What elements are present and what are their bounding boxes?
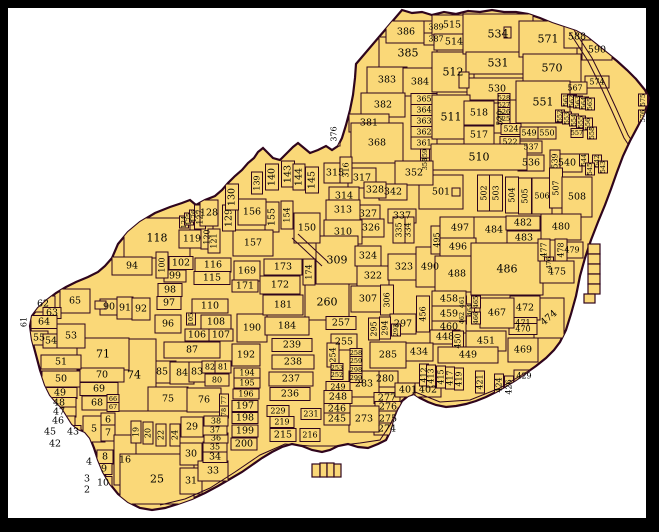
parcel-label: 434 [410, 347, 428, 358]
parcel-label: 551 [533, 96, 554, 109]
parcel-label: 514 [445, 37, 463, 48]
parcel-label: 200 [235, 439, 253, 450]
parcel-label: 150 [298, 223, 316, 234]
parcel-label: 456 [419, 306, 428, 321]
parcel-label: 22 [157, 430, 166, 440]
parcel-label: 29 [186, 422, 198, 433]
parcel-label: 570 [542, 62, 563, 75]
parcel-label: 195 [239, 379, 254, 388]
parcel-label: 249 [330, 383, 345, 392]
parcel-label: 50 [55, 374, 67, 385]
parcel-label: 309 [327, 254, 348, 267]
parcel-label: 24 [171, 430, 180, 440]
parcel-label: 25 [150, 473, 164, 486]
parcel-label: 239 [283, 340, 301, 351]
parcel-label: 10 [97, 478, 109, 489]
parcel-label: 558 [588, 127, 596, 139]
parcel-label: 475 [548, 267, 566, 278]
parcel-label: 518 [470, 108, 488, 119]
island-parcel [588, 254, 600, 264]
parcel-label: 448 [436, 332, 454, 343]
parcel-label: 130 [227, 188, 238, 206]
parcel-label: 192 [237, 350, 255, 361]
parcel-label: 383 [378, 75, 396, 86]
parcel-label: 534 [488, 28, 509, 41]
parcel-label: 139 [253, 175, 262, 190]
parcel-label: 70 [96, 370, 108, 381]
parcel-label: 34 [209, 452, 221, 463]
parcel-label: 327 [359, 209, 377, 220]
parcel-label: 307 [359, 294, 377, 305]
parcel-label: 376 [330, 126, 339, 141]
parcel-label: 590 [588, 45, 606, 56]
parcel-label: 451 [477, 336, 495, 347]
parcel-label: 323 [395, 262, 413, 273]
parcel-label: 108 [207, 317, 225, 328]
parcel-label: 215 [274, 430, 292, 441]
parcel-label: 143 [283, 165, 294, 183]
parcel-label: 100 [158, 257, 167, 272]
parcel-label: 76 [198, 395, 210, 406]
parcel-label: 259 [350, 357, 362, 365]
island-parcel [588, 274, 600, 284]
parcel-label: 285 [379, 350, 397, 361]
parcel-label: 169 [238, 266, 256, 277]
parcel-label: 525 [498, 115, 510, 123]
parcel-label: 313 [334, 205, 352, 216]
parcel-label: 274 [378, 424, 396, 435]
parcel-label: 459 [440, 309, 458, 320]
parcel-label: 80 [212, 376, 222, 385]
parcel-label: 461 [458, 296, 466, 308]
parcel-label: 364 [416, 106, 431, 115]
parcel-label: 510 [469, 151, 490, 164]
parcel-label: 314 [335, 191, 353, 202]
parcel-label: 385 [398, 47, 419, 60]
parcel-label: 128 [200, 208, 218, 219]
parcel-label: 280 [376, 374, 394, 385]
parcel-label: 85 [156, 367, 168, 378]
parcel-label: 512 [443, 66, 464, 79]
parcel-label: 322 [364, 271, 382, 282]
parcel-label: 389 [428, 23, 443, 32]
parcel-label: 145 [307, 171, 318, 189]
parcel-label: 530 [488, 84, 506, 95]
parcel-label: 8 [102, 452, 108, 463]
parcel-label: 102 [172, 258, 190, 269]
parcel-label: 576 [639, 110, 647, 122]
parcel-label: 90 [103, 302, 115, 313]
parcel-label: 67 [109, 403, 117, 411]
parcel-label: 157 [244, 238, 262, 249]
parcel-label: 173 [274, 262, 292, 273]
parcel-label: 545 [586, 163, 594, 175]
parcel-label: 254 [329, 347, 338, 362]
parcel-label: 472 [516, 303, 534, 314]
parcel-label: 99 [169, 271, 181, 282]
parcel-label: 94 [126, 261, 138, 272]
parcel-label: 5 [91, 424, 97, 435]
parcel-label: 429 [516, 372, 531, 381]
parcel-label: 386 [397, 27, 415, 38]
parcel-label: 20 [144, 428, 153, 438]
parcel-label: 107 [212, 330, 230, 341]
parcel-label: 140 [267, 168, 278, 186]
parcel-label: 7 [105, 428, 111, 439]
parcel-label: 310 [334, 227, 352, 238]
parcel-label: 196 [238, 390, 253, 399]
parcel-label: 260 [317, 296, 338, 309]
parcel-label: 181 [274, 300, 292, 311]
parcel-label: 255 [335, 337, 353, 348]
parcel-label: 483 [515, 233, 533, 244]
parcel-label: 515 [443, 20, 461, 31]
parcel-label: 293 [392, 324, 400, 336]
parcel-label: 54 [45, 336, 57, 347]
parcel-label: 477 [540, 242, 549, 257]
parcel-label: 3 [84, 474, 90, 485]
parcel-label: 154 [283, 207, 292, 222]
parcel-label: 417 [446, 370, 455, 385]
parcel-label: 75 [162, 394, 174, 405]
parcel-label: 198 [236, 413, 254, 424]
parcel-label: 106 [188, 330, 206, 341]
parcel-label: 231 [303, 410, 318, 419]
parcel-label: 71 [96, 348, 110, 361]
parcel-label: 335 [395, 222, 404, 237]
parcel-label: 144 [294, 168, 305, 186]
parcel-label: 505 [521, 188, 530, 203]
parcel-label: 506 [534, 192, 549, 201]
parcel-label: 236 [281, 389, 299, 400]
parcel-label: 482 [514, 218, 532, 229]
parcel-label: 96 [162, 319, 174, 330]
parcel-label: 92 [135, 304, 147, 315]
parcel-label: 469 [514, 345, 532, 356]
parcel-label: 65 [69, 296, 81, 307]
parcel-label: 172 [271, 280, 289, 291]
parcel-label: 237 [282, 374, 300, 385]
parcel-label: 258 [350, 349, 362, 357]
parcel-label: 502 [480, 185, 489, 200]
parcel-label: 316 [342, 162, 351, 177]
parcel-label: 298 [350, 366, 362, 374]
parcel-label: 382 [374, 100, 392, 111]
parcel-label: 326 [362, 223, 380, 234]
parcel-label: 488 [448, 269, 466, 280]
parcel-label: 413 [427, 368, 436, 383]
parcel-label: 33 [207, 466, 219, 477]
parcel-label: 368 [368, 138, 386, 149]
parcel-label: 294 [381, 320, 390, 335]
parcel-label: 549 [521, 129, 536, 138]
parcel-label: 401 [399, 385, 417, 396]
parcel-label: 365 [416, 95, 431, 104]
parcel-label: 9 [101, 464, 107, 475]
parcel-label: 91 [119, 303, 131, 314]
parcel-label: 306 [383, 292, 392, 307]
parcel-label: 45 [44, 427, 56, 438]
parcel-label: 458 [440, 294, 458, 305]
parcel-label: 199 [236, 426, 254, 437]
parcel-label: 324 [359, 251, 377, 262]
parcel-label: 426 [505, 379, 514, 394]
parcel-label: 229 [270, 407, 285, 416]
parcel-label: 119 [183, 234, 201, 245]
parcel-label: 129 [224, 209, 235, 227]
parcel-label: 238 [284, 357, 302, 368]
parcel-label: 539 [551, 153, 560, 168]
parcel-label: 466 [472, 312, 480, 324]
parcel-label: 184 [278, 321, 296, 332]
parcel-label: 450 [454, 333, 463, 348]
parcel-label: 328 [366, 185, 384, 196]
parcel-label: 467 [488, 308, 506, 319]
parcel-label: 219 [274, 418, 289, 427]
parcel-label: 496 [449, 242, 467, 253]
parcel-label: 465 [472, 296, 480, 308]
parcel-label: 31 [185, 476, 197, 487]
parcel-label: 424 [495, 377, 504, 392]
parcel-label: 121 [210, 233, 219, 248]
parcel-label: 116 [204, 260, 222, 271]
parcel-label: 517 [470, 130, 488, 141]
island-parcel [588, 284, 600, 294]
parcel-label: 35 [210, 443, 220, 452]
parcel-label: 511 [441, 111, 462, 124]
parcel-label: 387 [428, 35, 443, 44]
parcel-label: 61 [20, 317, 29, 327]
parcel-label: 98 [164, 285, 176, 296]
parcel-label: 87 [186, 345, 198, 356]
island-parcel [320, 463, 327, 477]
parcel-label: 550 [539, 129, 554, 138]
parcel-label: 537 [523, 143, 538, 152]
parcel-label: 2 [84, 485, 90, 496]
parcel-label: 567 [567, 84, 582, 93]
parcel-label: 317 [353, 173, 371, 184]
parcel-label: 64 [38, 317, 50, 328]
parcel-label: 462 [458, 312, 466, 324]
parcel-label: 105 [187, 313, 195, 325]
parcel-label: 508 [568, 192, 586, 203]
parcel-label: 524 [503, 125, 518, 134]
parcel-label: 557 [571, 129, 583, 137]
parcel-label: 36 [211, 434, 221, 443]
parcel-map-svg: 3853863893873833843823813683763653643633… [0, 0, 659, 532]
parcel-label: 478 [557, 242, 566, 257]
parcel-label: 484 [485, 225, 503, 236]
parcel-label: 6 [105, 415, 111, 426]
parcel-label: 77 [220, 396, 228, 404]
parcel-label: 37 [210, 426, 220, 435]
parcel-label: 363 [416, 117, 431, 126]
parcel-label: 42 [49, 439, 61, 450]
parcel-label: 588 [568, 32, 586, 43]
parcel-label: 480 [552, 222, 570, 233]
parcel-label: 299 [350, 374, 362, 382]
parcel-label: 479 [564, 246, 579, 255]
parcel-label: 171 [236, 281, 254, 292]
parcel-label: 197 [236, 401, 254, 412]
parcel-label: 402 [419, 385, 437, 396]
parcel-label: 78 [220, 408, 228, 416]
parcel-label: 55 [33, 333, 45, 344]
parcel-label: 486 [497, 263, 518, 276]
parcel-label: 81 [218, 363, 228, 372]
parcel-label: 68 [91, 398, 103, 409]
parcel-label: 276 [379, 402, 397, 413]
parcel-label: 337 [393, 211, 411, 222]
parcel-label: 252 [331, 371, 343, 379]
parcel-label: 352 [405, 168, 423, 179]
parcel-label: 118 [147, 232, 168, 245]
parcel-label: 536 [522, 158, 540, 169]
parcel-label: 66 [109, 395, 117, 403]
island-parcel [334, 464, 341, 477]
parcel-label: 174 [305, 264, 314, 279]
parcel-label: 342 [384, 187, 402, 198]
parcel-label: 507 [552, 180, 561, 195]
parcel-label: 194 [239, 369, 254, 378]
parcel-label: 495 [433, 232, 442, 247]
parcel-label: 540 [558, 158, 576, 169]
parcel-label: 74 [127, 369, 141, 382]
parcel-label: 381 [360, 118, 378, 129]
parcel-label: 574 [589, 78, 604, 87]
parcel-label: 16 [119, 455, 131, 466]
parcel-label: 97 [163, 298, 175, 309]
parcel-label: 361 [416, 139, 431, 148]
parcel-label: 43 [67, 427, 79, 438]
parcel-label: 362 [416, 128, 431, 137]
parcel-label: 110 [201, 301, 219, 312]
parcel-label: 82 [205, 363, 215, 372]
parcel-label: 83 [191, 367, 203, 378]
parcel-label: 69 [93, 384, 105, 395]
parcel-label: 565 [586, 98, 594, 110]
island-parcel [584, 294, 595, 303]
parcel-label: 415 [437, 369, 446, 384]
parcel-label: 571 [538, 33, 559, 46]
parcel-label: 531 [488, 57, 509, 70]
parcel-label: 522 [502, 138, 517, 147]
island-parcel [588, 244, 600, 254]
parcel-map: 3853863893873833843823813683763653643633… [0, 0, 659, 532]
parcel-label: 501 [432, 187, 450, 198]
parcel-label: 490 [421, 262, 439, 273]
parcel-label: 156 [243, 207, 261, 218]
parcel-label: 257 [332, 318, 350, 329]
parcel-label: 38 [211, 417, 221, 426]
parcel-label: 543 [599, 161, 607, 173]
building-mark [452, 188, 460, 196]
parcel-label: 190 [243, 323, 261, 334]
parcel-label: 51 [55, 357, 67, 368]
island-parcel [327, 463, 334, 477]
parcel-label: 115 [203, 273, 221, 284]
parcel-label: 273 [355, 414, 373, 425]
parcel-label: 503 [492, 185, 501, 200]
parcel-label: 155 [267, 208, 278, 226]
parcel-label: 84 [176, 368, 188, 379]
parcel-label: 470 [515, 325, 530, 334]
parcel-label: 419 [455, 371, 464, 386]
parcel-label: 295 [370, 321, 379, 336]
parcel-label: 46 [52, 416, 64, 427]
parcel-label: 248 [329, 392, 347, 403]
island-parcel [588, 264, 600, 274]
parcel-label: 30 [185, 449, 197, 460]
parcel-label: 421 [476, 374, 485, 389]
parcel-label: 497 [451, 223, 469, 234]
parcel-label: 384 [411, 77, 429, 88]
parcel-label: 449 [459, 350, 477, 361]
parcel-label: 575 [639, 94, 647, 106]
parcel-label: 4 [86, 457, 92, 468]
parcel-label: 245 [328, 414, 346, 425]
parcel-label: 334 [404, 222, 413, 237]
parcel-label: 504 [508, 187, 517, 202]
island-parcel [312, 464, 320, 477]
parcel-label: 53 [65, 331, 77, 342]
parcel-label: 216 [302, 431, 317, 440]
parcel-label: 19 [132, 427, 141, 437]
